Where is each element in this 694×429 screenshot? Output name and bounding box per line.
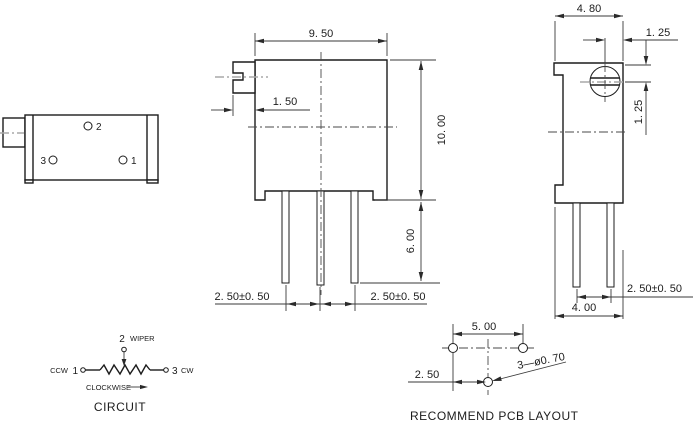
dim-front-width: 9. 50 bbox=[255, 28, 387, 56]
circuit-terminal-3-node bbox=[164, 368, 169, 373]
circuit-terminal-2-label: 2 bbox=[119, 334, 125, 345]
pcb-hole-right bbox=[519, 344, 528, 353]
circuit-terminal-1-node bbox=[81, 368, 86, 373]
side-view: 4. 80 1. 25 1. 25 2. 5 bbox=[548, 3, 693, 319]
dim-front-adjuster-offset-text: 1. 50 bbox=[273, 96, 297, 108]
dim-side-depth-text: 4. 80 bbox=[577, 3, 601, 15]
dim-side-base-width-text: 4. 00 bbox=[572, 302, 596, 314]
back-terminal-2-label: 2 bbox=[96, 122, 102, 133]
side-pin-left bbox=[573, 203, 580, 287]
back-terminal-3-hole bbox=[49, 156, 57, 164]
back-terminal-3-label: 3 bbox=[40, 156, 46, 167]
circuit-clockwise-label: CLOCKWISE bbox=[86, 383, 131, 392]
dim-front-pin-pitch: 2. 50±0. 50 2. 50±0. 50 bbox=[215, 285, 427, 311]
front-view: 9. 50 1. 50 10. 00 6. 00 bbox=[211, 28, 448, 311]
circuit-terminal-1-label: 1 bbox=[72, 366, 78, 377]
dim-side-screw-offset-v: 1. 25 bbox=[625, 40, 651, 135]
circuit-ccw-label: CCW bbox=[50, 366, 69, 375]
circuit-title: CIRCUIT bbox=[94, 400, 146, 414]
dim-side-pin-pitch-text: 2. 50±0. 50 bbox=[627, 283, 682, 295]
resistor-zigzag bbox=[100, 365, 150, 374]
circuit-diagram: 2 WIPER CCW 1 3 CW CLOCKWISE CIRCUIT bbox=[50, 334, 194, 414]
circuit-cw-label: CW bbox=[181, 366, 194, 375]
circuit-wiper-label: WIPER bbox=[130, 334, 155, 343]
dim-pcb-hole-offset: 2. 50 bbox=[408, 352, 486, 391]
pcb-layout-title: RECOMMEND PCB LAYOUT bbox=[410, 409, 579, 423]
dim-front-height-text: 10. 00 bbox=[436, 115, 448, 146]
mechanical-drawing: 2 3 1 9. 50 1 bbox=[0, 0, 694, 429]
dim-side-screw-offset-v-text: 1. 25 bbox=[633, 100, 645, 124]
front-pin-3 bbox=[351, 191, 358, 283]
circuit-terminal-2-node bbox=[122, 347, 127, 352]
pcb-layout: 5. 00 2. 50 3—ø0. 70 RECOMMEND PCB LAYOU… bbox=[408, 321, 579, 423]
dim-front-pin-pitch-right-text: 2. 50±0. 50 bbox=[371, 291, 426, 303]
pcb-hole-spec-leader: 3—ø0. 70 bbox=[492, 351, 566, 381]
circuit-terminal-3-label: 3 bbox=[172, 366, 178, 377]
dim-front-pin-pitch-left-text: 2. 50±0. 50 bbox=[215, 291, 270, 303]
drawing-canvas: 2 3 1 9. 50 1 bbox=[0, 0, 694, 429]
dim-side-screw-offset-h: 1. 25 bbox=[583, 27, 678, 63]
front-pin-1 bbox=[282, 191, 289, 283]
dim-front-width-text: 9. 50 bbox=[309, 28, 333, 40]
back-terminal-1-hole bbox=[119, 156, 127, 164]
front-pin-2 bbox=[317, 191, 324, 285]
dim-side-pin-pitch: 2. 50±0. 50 bbox=[577, 283, 693, 303]
side-pin-right bbox=[607, 203, 614, 287]
back-terminal-1-label: 1 bbox=[131, 156, 137, 167]
back-view: 2 3 1 bbox=[0, 115, 158, 183]
clockwise-arrow bbox=[140, 385, 148, 389]
dim-front-pin-length: 6. 00 bbox=[360, 202, 440, 283]
dim-front-pin-length-text: 6. 00 bbox=[405, 229, 417, 253]
back-terminal-2-hole bbox=[84, 122, 92, 130]
dim-side-depth: 4. 80 bbox=[555, 3, 623, 61]
dim-pcb-hole-pitch-text: 5. 00 bbox=[472, 321, 496, 333]
dim-pcb-hole-offset-text: 2. 50 bbox=[415, 369, 439, 381]
dim-side-screw-offset-h-text: 1. 25 bbox=[646, 27, 670, 39]
pcb-hole-left bbox=[449, 344, 458, 353]
